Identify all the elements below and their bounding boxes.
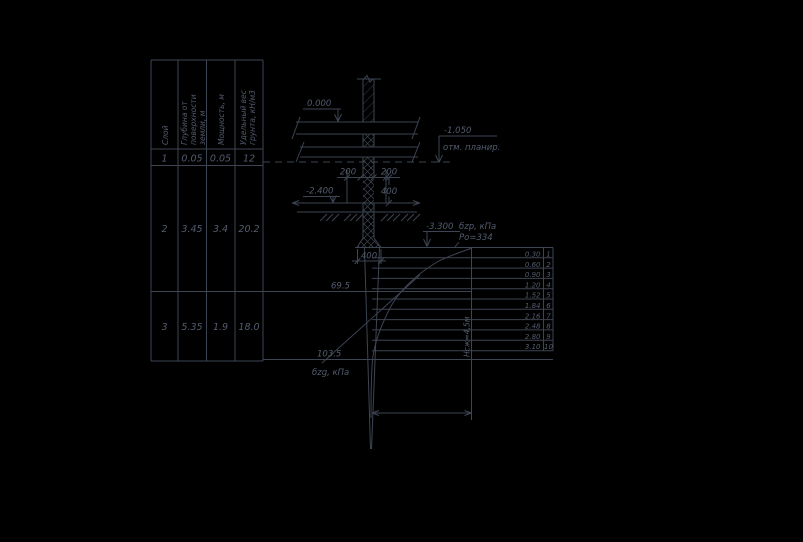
layer2-boundary: 69.5 xyxy=(263,282,472,292)
dimension-footing-height-400: 400 xyxy=(381,175,397,207)
cell-layer-2: 2 xyxy=(161,224,167,235)
planning-level-label: -1.050 xyxy=(444,126,471,136)
depth-index-5: 5 xyxy=(546,292,551,300)
excavation-line xyxy=(292,201,420,206)
dimension-pile-width-400: 400 xyxy=(352,249,386,264)
depth-value-8: 2.48 xyxy=(525,323,541,331)
depth-index-3: 3 xyxy=(546,271,550,279)
column-between-slabs xyxy=(363,134,374,147)
sigma-zg-axis-label: бzg, кПа xyxy=(312,368,349,378)
elevation-3300-label: -3.300 xyxy=(426,222,453,232)
cell-weight-2: 20.2 xyxy=(238,224,259,235)
sigma-zp-axis-label: бzp, кПа xyxy=(459,222,496,232)
cell-layer-1: 1 xyxy=(161,154,167,165)
soil-table-rows: 1 0.05 0.05 12 2 3.45 3.4 20.2 3 5.35 1.… xyxy=(161,154,259,334)
header-depth-line3: земли, м xyxy=(198,110,207,145)
depth-index-1: 1 xyxy=(546,251,550,259)
depth-index-9: 9 xyxy=(546,333,551,341)
cell-depth-1: 0.05 xyxy=(181,154,202,165)
compressible-base-dimension xyxy=(372,411,472,416)
cell-layer-3: 3 xyxy=(161,322,167,333)
sigma-zp-curve xyxy=(371,248,472,418)
header-thickness: Мощность, м xyxy=(217,94,226,145)
depth-index-7: 7 xyxy=(546,312,551,320)
po-value: Ро=334 xyxy=(455,233,493,247)
depth-value-4: 1.20 xyxy=(525,281,541,289)
depth-index-6: 6 xyxy=(546,302,551,310)
elevation-3300-mark: -3.300 xyxy=(423,222,460,247)
depth-index-4: 4 xyxy=(546,281,550,289)
pile-shaft xyxy=(357,203,381,248)
column-below-slab xyxy=(363,157,374,177)
pile-tip xyxy=(365,248,380,450)
elevation-zero-mark: 0.000 xyxy=(303,99,342,122)
floor-slab-upper xyxy=(292,117,420,139)
dim-200-right-label: 200 xyxy=(381,168,397,178)
elevation-2400-mark: -2.400 xyxy=(303,187,340,203)
depth-index-2: 2 xyxy=(546,261,551,269)
floor-slab-lower xyxy=(296,142,420,162)
sigma-zg-103-label: 103.5 xyxy=(317,350,341,360)
cell-thickness-1: 0.05 xyxy=(210,154,231,165)
depth-value-5: 1.52 xyxy=(525,292,541,300)
depth-value-2: 0.60 xyxy=(525,261,541,269)
depth-index-8: 8 xyxy=(546,323,551,331)
foundation-settlement-drawing: Слой Глубина от поверхности земли, м Мощ… xyxy=(0,0,803,542)
cell-thickness-2: 3.4 xyxy=(213,224,228,235)
depth-value-7: 2.16 xyxy=(525,312,541,320)
dim-400-footing-label: 400 xyxy=(381,187,397,197)
cell-weight-3: 18.0 xyxy=(238,322,259,333)
cell-thickness-3: 1.9 xyxy=(213,322,228,333)
depth-index-10: 10 xyxy=(544,343,553,351)
cad-canvas: Слой Глубина от поверхности земли, м Мощ… xyxy=(0,0,803,542)
depth-value-10: 3.10 xyxy=(525,343,541,351)
header-unitweight-line2: грунта, кН/м3 xyxy=(248,90,257,145)
depth-value-9: 2.80 xyxy=(525,333,541,341)
header-unitweight-line1: Удельный вес xyxy=(239,89,248,145)
cell-weight-1: 12 xyxy=(243,154,255,165)
header-layer: Слой xyxy=(161,125,170,145)
column-upper xyxy=(357,76,381,123)
dim-400-pile-label: 400 xyxy=(361,252,377,262)
cell-depth-3: 5.35 xyxy=(181,322,202,333)
dim-200-left-label: 200 xyxy=(340,168,356,178)
layer3-bottom-boundary: 103.5 бzg, кПа xyxy=(263,350,553,379)
elevation-zero-label: 0.000 xyxy=(307,99,331,109)
header-depth-line2: поверхности xyxy=(189,94,198,145)
soil-table-headers: Слой Глубина от поверхности земли, м Мощ… xyxy=(161,89,257,145)
depth-value-6: 1.84 xyxy=(525,302,541,310)
planning-note-label: отм. планир. xyxy=(443,143,500,153)
po-label: Ро=334 xyxy=(459,233,493,243)
sigma-zg-69-label: 69.5 xyxy=(331,282,350,292)
compressible-depth-label: Нсж=4,5м xyxy=(463,316,472,357)
cell-depth-2: 3.45 xyxy=(181,224,202,235)
depth-value-1: 0.30 xyxy=(525,251,541,259)
depth-table-grid xyxy=(355,248,553,421)
elevation-2400-label: -2.400 xyxy=(306,187,333,197)
planning-level-mark: -1.050 отм. планир. xyxy=(436,126,501,163)
depth-value-3: 0.90 xyxy=(525,271,541,279)
header-depth-line1: Глубина от xyxy=(180,101,189,145)
depth-scale-values: 0.30 0.60 0.90 1.20 1.52 1.84 2.16 2.48 … xyxy=(525,251,554,352)
